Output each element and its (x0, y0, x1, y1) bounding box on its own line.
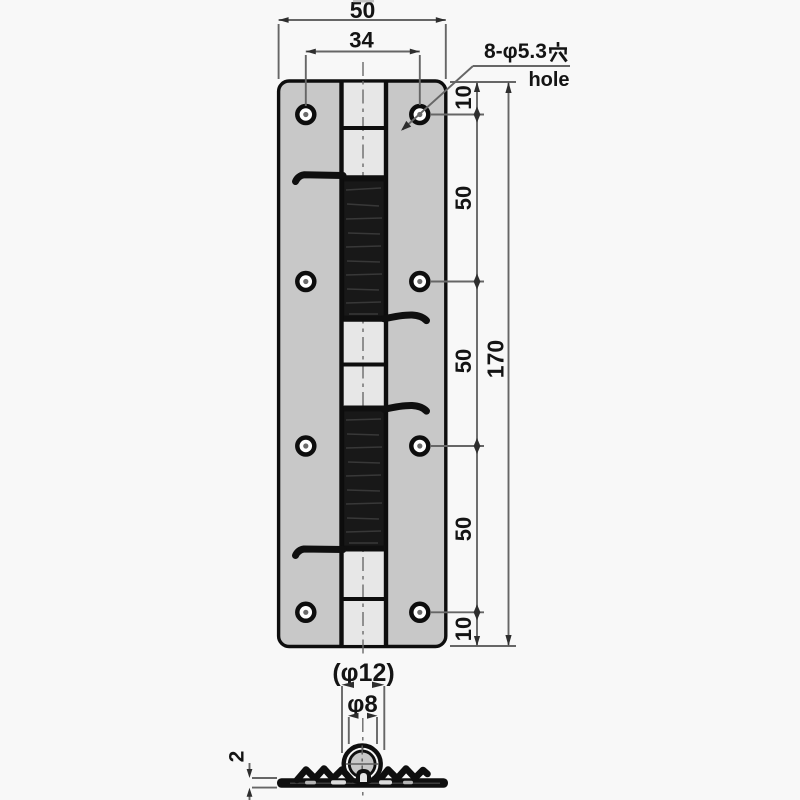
svg-text:50: 50 (451, 517, 476, 541)
svg-text:34: 34 (349, 28, 374, 53)
svg-text:10: 10 (451, 85, 476, 109)
svg-text:8-φ5.3: 8-φ5.3 (484, 40, 547, 63)
svg-text:10: 10 (451, 617, 476, 641)
svg-text:(φ12): (φ12) (332, 659, 394, 687)
svg-text:φ8: φ8 (347, 691, 378, 718)
svg-text:hole: hole (528, 69, 569, 91)
svg-text:170: 170 (483, 340, 509, 378)
svg-text:50: 50 (451, 349, 476, 373)
svg-text:50: 50 (350, 0, 376, 23)
svg-text:2: 2 (226, 751, 249, 763)
svg-text:50: 50 (451, 186, 476, 210)
